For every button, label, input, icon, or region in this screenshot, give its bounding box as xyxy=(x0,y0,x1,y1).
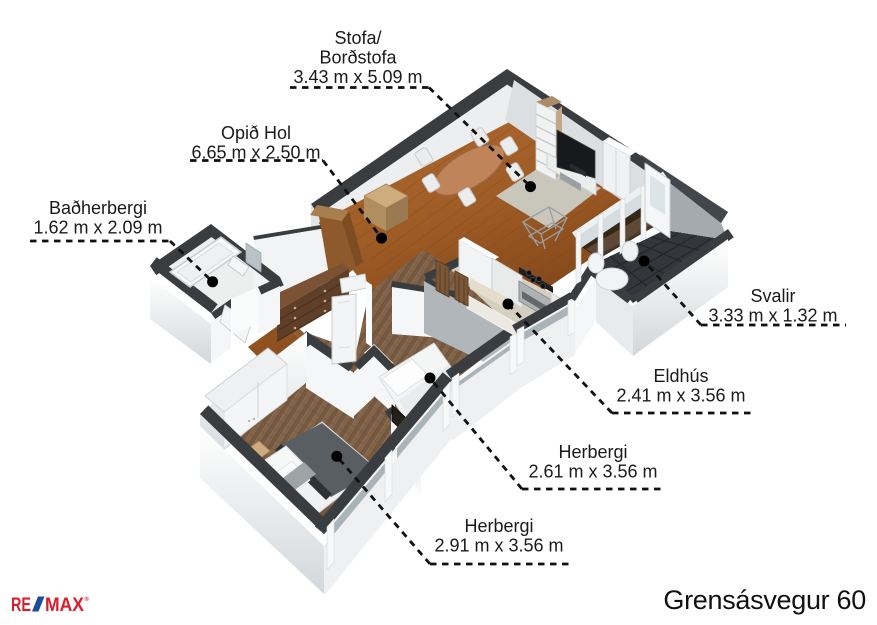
svg-text:Borðstofa: Borðstofa xyxy=(319,48,397,68)
svg-text:Svalir: Svalir xyxy=(750,286,795,306)
svg-text:Grensásvegur 60: Grensásvegur 60 xyxy=(663,585,866,615)
svg-text:Herbergi: Herbergi xyxy=(558,442,627,462)
svg-text:Opið Hol: Opið Hol xyxy=(221,123,291,143)
svg-text:2.91 m x 3.56 m: 2.91 m x 3.56 m xyxy=(434,536,563,556)
svg-text:3.43 m x 5.09 m: 3.43 m x 5.09 m xyxy=(293,67,422,87)
svg-text:1.62 m x 2.09 m: 1.62 m x 2.09 m xyxy=(33,218,162,238)
svg-text:Herbergi: Herbergi xyxy=(464,516,533,536)
svg-text:Baðherbergi: Baðherbergi xyxy=(49,198,147,218)
svg-text:2.61 m x 3.56 m: 2.61 m x 3.56 m xyxy=(528,462,657,482)
svg-text:MAX: MAX xyxy=(45,595,84,616)
svg-text:3.33 m x 1.32 m: 3.33 m x 1.32 m xyxy=(708,306,837,326)
svg-text:2.41 m x 3.56 m: 2.41 m x 3.56 m xyxy=(616,386,745,406)
svg-text:®: ® xyxy=(85,596,90,603)
svg-text:RE: RE xyxy=(11,595,31,616)
svg-text:Eldhús: Eldhús xyxy=(653,366,708,386)
svg-text:Stofa/: Stofa/ xyxy=(334,28,381,48)
